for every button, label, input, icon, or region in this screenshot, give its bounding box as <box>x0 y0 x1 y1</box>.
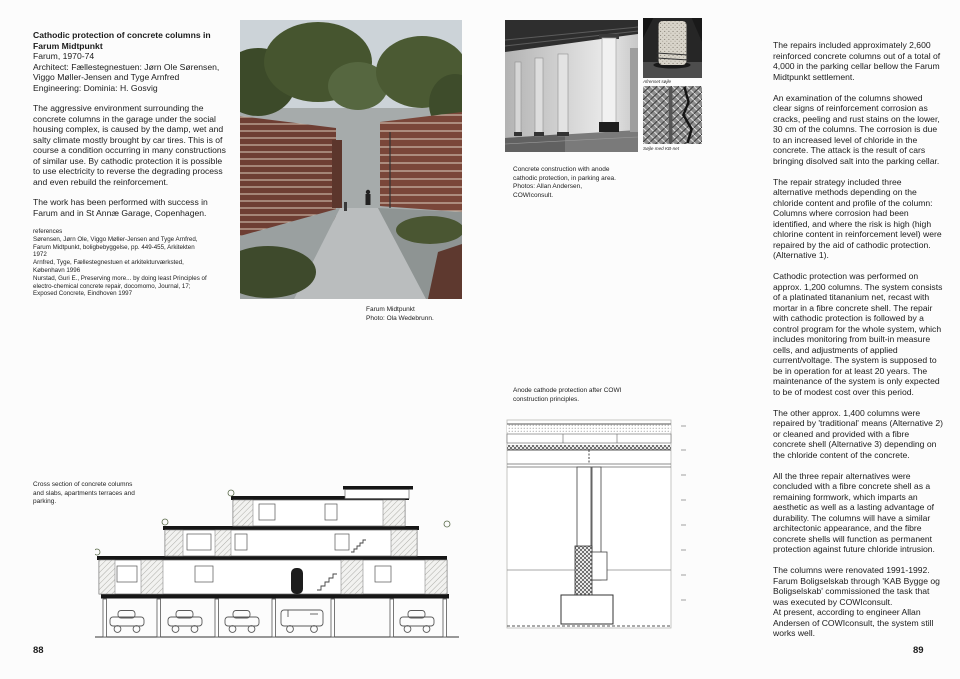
column-detail-photo <box>643 18 702 78</box>
meta-line: Engineering: Dominia: H. Gosvig <box>33 83 230 94</box>
paragraph: The other approx. 1,400 columns were rep… <box>773 408 943 461</box>
article-meta: Farum, 1970-74Architect: Fællestegnestue… <box>33 51 230 93</box>
references-label: references <box>33 228 208 236</box>
paragraph: The columns were renovated 1991-1992. Fa… <box>773 565 943 639</box>
paragraph: Cathodic protection was performed on app… <box>773 271 943 397</box>
reference-entry: Sørensen, Jørn Ole, Viggo Møller-Jensen … <box>33 236 208 259</box>
column-net-caption: Søjle med KB-net <box>643 146 703 151</box>
garage-photo-caption: Concrete construction with anode cathodi… <box>513 166 631 200</box>
paragraph: The aggressive environment surrounding t… <box>33 103 230 187</box>
references-block: references Sørensen, Jørn Ole, Viggo Møl… <box>33 228 208 298</box>
book-spread: Cathodic protection of concrete columns … <box>0 0 960 679</box>
article-text-column-right: The repairs included approximately 2,600… <box>773 40 943 649</box>
paragraph: All the three repair alternatives were c… <box>773 471 943 555</box>
diagram-caption: Anode cathode protection after COWI cons… <box>513 387 648 404</box>
parking-area-photo <box>505 20 638 152</box>
meta-line: Farum, 1970-74 <box>33 51 230 62</box>
reference-entry: Arnfred, Tyge, Fællestegnestuen et arkit… <box>33 259 208 275</box>
cross-section-drawing <box>95 486 470 654</box>
article-body: The aggressive environment surrounding t… <box>33 103 230 218</box>
paragraph: An examination of the columns showed cle… <box>773 93 943 167</box>
farum-midtpunkt-photo <box>240 20 462 299</box>
page-number-left: 88 <box>33 645 44 656</box>
paragraph: The repair strategy included three alter… <box>773 177 943 261</box>
meta-line: Architect: Fællestegnestuen: Jørn Ole Sø… <box>33 62 230 83</box>
column-detail-caption: Afrenset søjle <box>643 79 703 84</box>
anode-protection-drawing <box>505 418 710 646</box>
article-title: Cathodic protection of concrete columns … <box>33 30 230 51</box>
paragraph: The work has been performed with success… <box>33 197 230 218</box>
page-number-right: 89 <box>913 645 924 656</box>
references-list: Sørensen, Jørn Ole, Viggo Møller-Jensen … <box>33 236 208 298</box>
paragraph: The repairs included approximately 2,600… <box>773 40 943 82</box>
reference-entry: Nurstad, Guri E., Preserving more... by … <box>33 275 208 298</box>
article-text-column: Cathodic protection of concrete columns … <box>33 30 230 298</box>
main-photo-caption: Farum Midtpunkt Photo: Ola Wedebrunn. <box>366 306 486 323</box>
column-net-photo <box>643 86 702 144</box>
